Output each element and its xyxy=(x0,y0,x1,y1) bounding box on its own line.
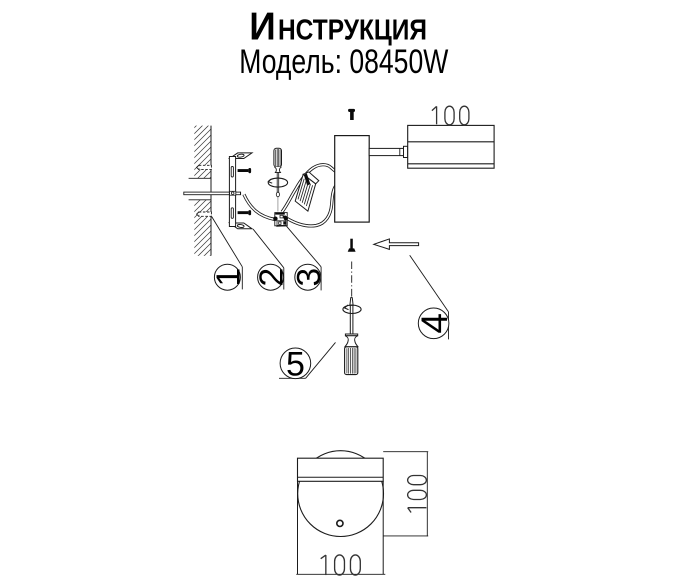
svg-text:2: 2 xyxy=(254,268,291,287)
svg-text:1: 1 xyxy=(211,268,248,287)
svg-text:И: И xyxy=(249,5,275,48)
svg-text:НСТРУКЦИЯ: НСТРУКЦИЯ xyxy=(278,14,427,46)
svg-text:5: 5 xyxy=(286,345,305,383)
svg-text:3: 3 xyxy=(291,268,328,287)
svg-text:4: 4 xyxy=(414,313,455,334)
svg-text:Модель: 08450W: Модель: 08450W xyxy=(239,43,448,81)
